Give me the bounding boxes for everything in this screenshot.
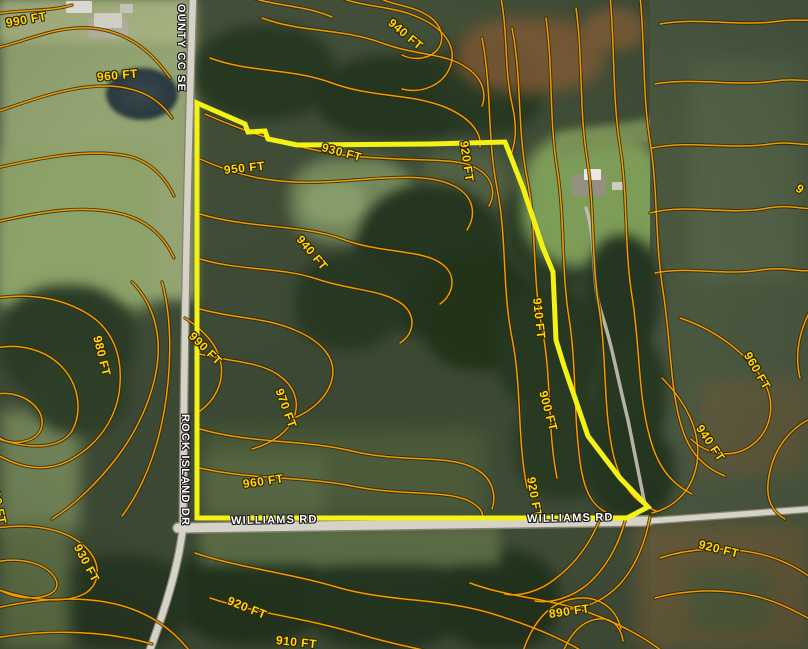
map-canvas[interactable]: 990 FT960 FT940 FT930 FT920 FT950 FT940 … (0, 0, 808, 649)
roads-outline (148, 0, 808, 649)
roads (148, 0, 808, 649)
contour-lines (0, 0, 808, 649)
map-overlay (0, 0, 808, 649)
